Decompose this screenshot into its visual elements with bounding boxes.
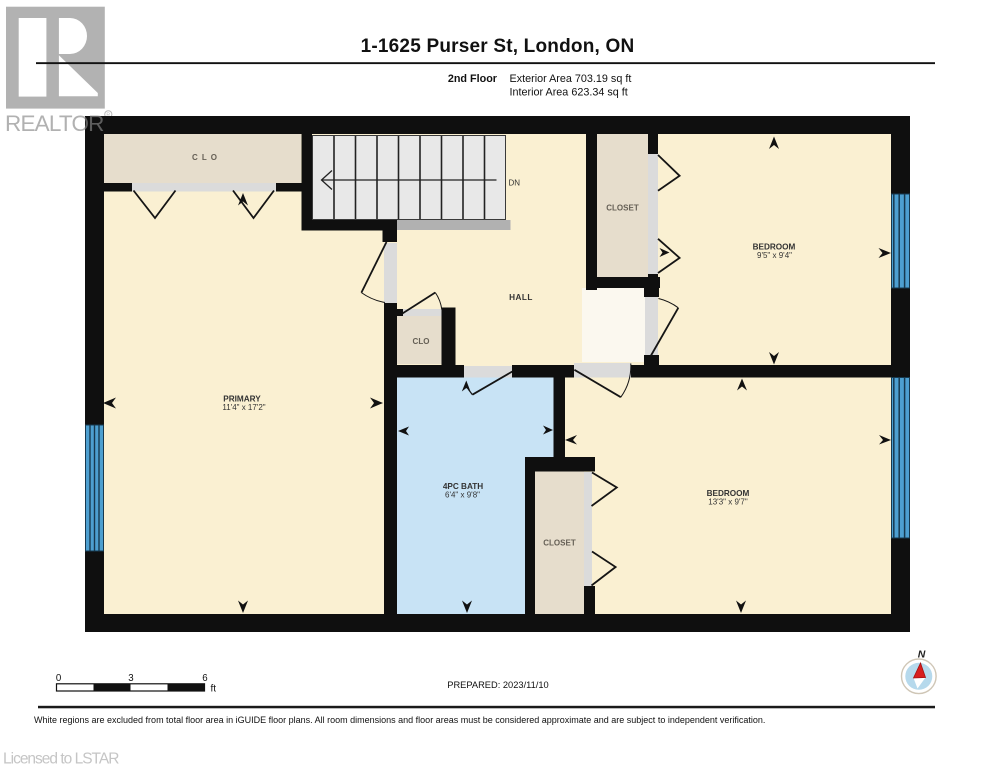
svg-text:REALTOR: REALTOR [5,111,104,136]
svg-text:White regions are excluded fro: White regions are excluded from total fl… [34,715,765,725]
svg-text:PREPARED: 2023/11/10: PREPARED: 2023/11/10 [447,680,548,690]
svg-text:CLO: CLO [413,337,430,346]
svg-text:13'3" x 9'7": 13'3" x 9'7" [708,498,748,507]
svg-text:CLOSET: CLOSET [543,539,576,548]
svg-text:DN: DN [509,179,521,188]
svg-text:11'4" x 17'2": 11'4" x 17'2" [222,403,265,412]
svg-text:Licensed to LSTAR: Licensed to LSTAR [3,751,119,768]
svg-text:CLOSET: CLOSET [606,204,639,213]
svg-text:Interior Area 623.34 sq ft: Interior Area 623.34 sq ft [510,87,628,99]
svg-text:CLO: CLO [192,153,221,162]
svg-text:1-1625 Purser St, London, ON: 1-1625 Purser St, London, ON [361,36,635,57]
svg-text:2nd Floor: 2nd Floor [448,73,498,85]
svg-text:6: 6 [202,673,207,684]
svg-text:ft: ft [211,684,217,695]
svg-text:3: 3 [128,673,133,684]
svg-text:6'4" x 9'8": 6'4" x 9'8" [445,491,480,500]
svg-text:HALL: HALL [509,293,533,302]
svg-text:Exterior Area 703.19 sq ft: Exterior Area 703.19 sq ft [510,73,632,85]
svg-text:N: N [918,649,926,661]
svg-text:9'5" x 9'4": 9'5" x 9'4" [757,251,792,260]
svg-text:0: 0 [56,673,62,684]
